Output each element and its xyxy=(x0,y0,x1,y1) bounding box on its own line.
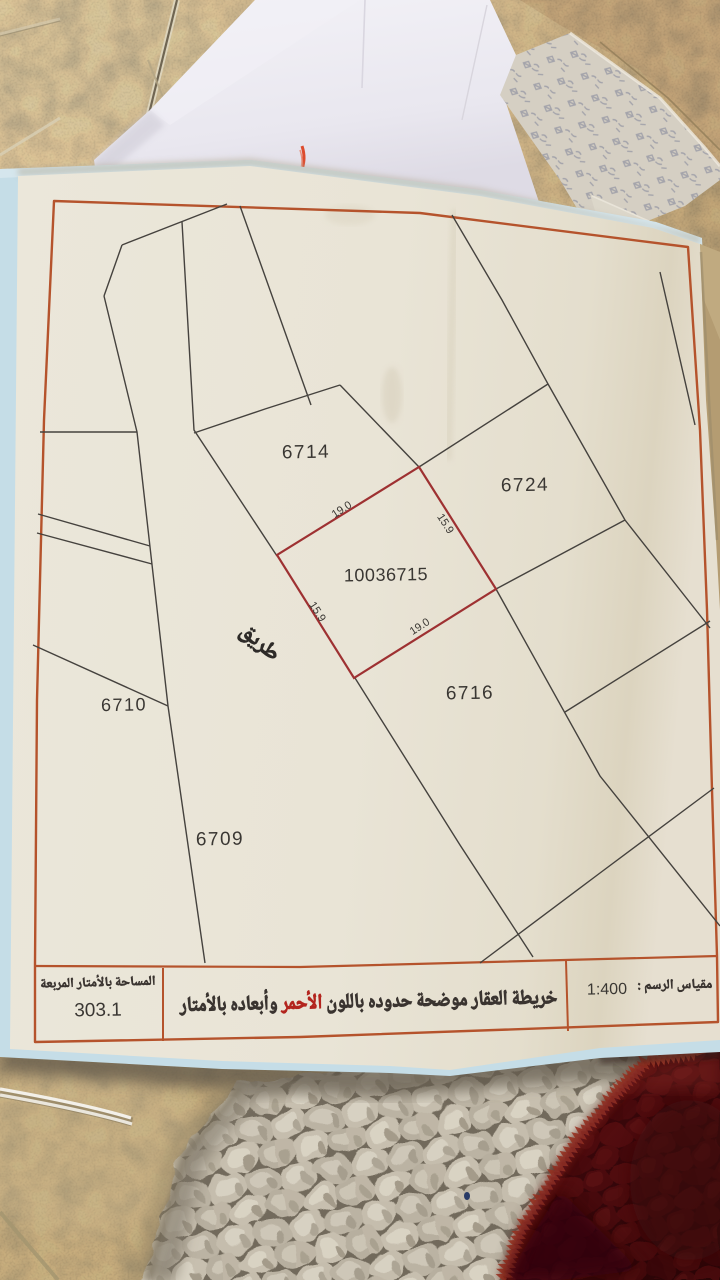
svg-text:1:400: 1:400 xyxy=(587,981,627,999)
svg-text:6714: 6714 xyxy=(282,442,331,464)
svg-text:6710: 6710 xyxy=(101,694,147,715)
svg-text:6709: 6709 xyxy=(196,829,245,851)
svg-text:303.1: 303.1 xyxy=(74,1000,122,1022)
svg-text:10036715: 10036715 xyxy=(344,564,428,585)
svg-text:6716: 6716 xyxy=(446,683,495,705)
svg-text:6724: 6724 xyxy=(501,475,550,497)
